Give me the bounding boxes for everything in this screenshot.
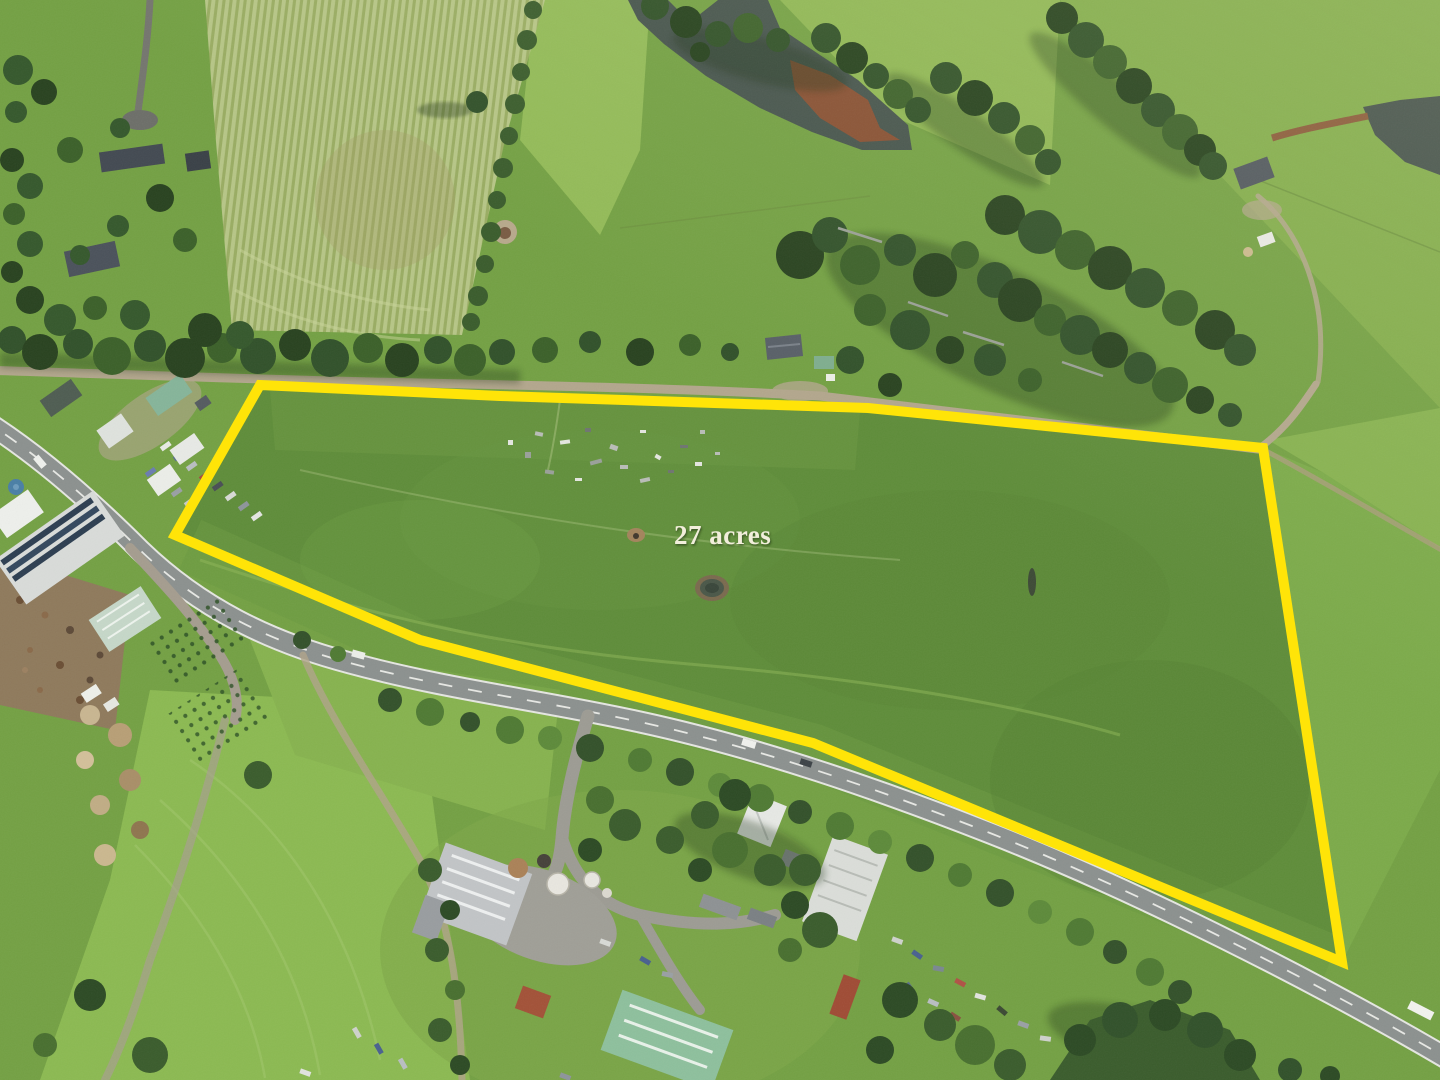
aerial-scene: 27 acres [0, 0, 1440, 1080]
area-label: 27 acres [674, 520, 771, 550]
aerial-property-photo: 27 acres [0, 0, 1440, 1080]
